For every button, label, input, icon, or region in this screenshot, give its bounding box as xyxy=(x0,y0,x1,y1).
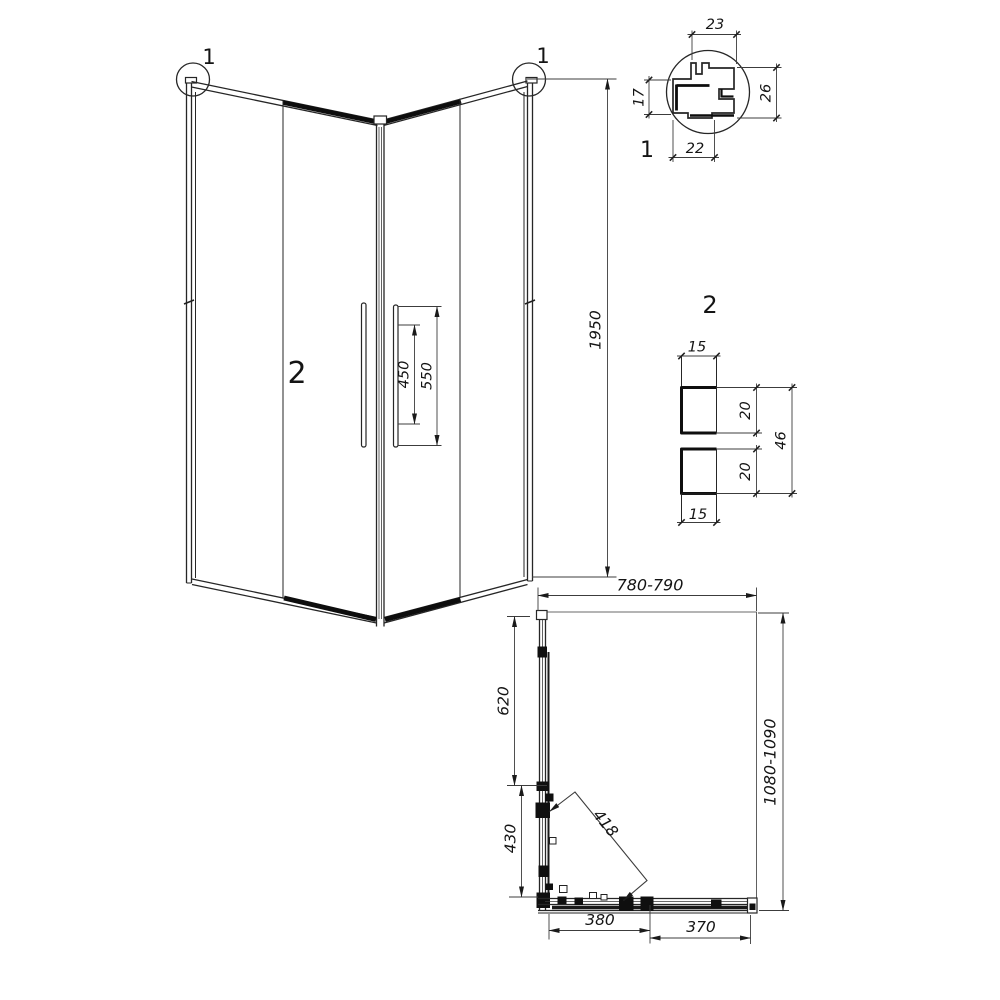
dim-370: 370 xyxy=(686,918,716,936)
guide-clip xyxy=(601,895,607,901)
guide-clip xyxy=(590,893,597,899)
guide-clip xyxy=(550,838,557,845)
roller-block xyxy=(539,866,550,878)
elevation-callout-left-label: 1 xyxy=(202,45,215,69)
top-rail-right xyxy=(384,81,528,126)
roller-block xyxy=(641,897,654,912)
dim-22: 22 xyxy=(686,141,704,157)
plan-side-track xyxy=(536,611,568,911)
wall-profile-left xyxy=(184,78,197,584)
roller-block xyxy=(536,803,551,819)
bracket-block xyxy=(711,900,722,909)
dim-26: 26 xyxy=(759,84,775,102)
door-bottom-edge-left xyxy=(284,598,376,620)
dim-detail2-bottom: 15 xyxy=(677,507,721,526)
wall-profile-right xyxy=(524,78,537,582)
bottom-rail-right xyxy=(384,580,528,624)
corner-block xyxy=(537,893,551,909)
detail-1-view: 23 26 17 22 1 xyxy=(632,17,782,163)
dim-detail1-top: 23 xyxy=(688,17,742,64)
dim-380: 380 xyxy=(585,911,615,929)
dim-20-lower: 20 xyxy=(738,462,754,480)
door-top-edge-left xyxy=(283,103,377,123)
dim-detail2-overall: 46 xyxy=(774,384,796,498)
handle-left xyxy=(362,303,367,447)
dim-20-upper: 20 xyxy=(738,401,754,419)
bottom-rail-left xyxy=(192,579,377,623)
roller-block xyxy=(545,794,554,802)
dim-height-1950: 1950 xyxy=(587,310,605,350)
roller-block xyxy=(538,647,548,658)
glass-flange-upper xyxy=(682,356,717,388)
dim-depth-1080-1090: 1080-1090 xyxy=(761,718,780,805)
dim-detail2-top: 15 xyxy=(677,340,721,360)
door-bottom-edge-right xyxy=(385,600,461,620)
dim-plan-depth: 1080-1090 xyxy=(758,613,789,911)
magnet-profile-lower xyxy=(682,449,717,494)
dim-plan-width: 780-790 xyxy=(538,576,757,612)
door-top-edge-right xyxy=(385,102,462,123)
elevation-callout-right-label: 1 xyxy=(536,44,549,68)
dim-detail1-left: 17 xyxy=(632,76,672,119)
dim-plan-side-lower: 430 xyxy=(502,786,539,898)
elevation-view: 1 1 2 450 550 1950 xyxy=(177,44,617,627)
plan-bottom-track xyxy=(538,893,757,914)
elevation-panel-label: 2 xyxy=(287,356,306,391)
plan-view: 418 780-790 1080-1090 620 430 xyxy=(495,576,790,945)
corner-post xyxy=(374,116,387,627)
dim-23: 23 xyxy=(706,17,724,33)
technical-drawing: 1 1 2 450 550 1950 xyxy=(0,0,1000,1000)
dim-418: 418 xyxy=(589,806,622,840)
detail1-label: 1 xyxy=(640,138,654,163)
roller-block xyxy=(546,884,554,891)
dim-15-bottom: 15 xyxy=(689,507,707,523)
detail2-label: 2 xyxy=(702,291,717,319)
dim-46: 46 xyxy=(774,431,790,449)
dim-15-top: 15 xyxy=(688,340,706,356)
top-rail-left xyxy=(192,82,378,126)
guide-clip xyxy=(560,886,568,893)
dim-height: 1950 xyxy=(527,79,617,577)
roller-block xyxy=(558,897,567,905)
detail-2-view: 2 15 20 xyxy=(677,291,797,526)
dim-detail2-upper: 20 xyxy=(738,384,760,438)
dim-width-780-790: 780-790 xyxy=(617,576,684,595)
dim-detail1-bottom: 22 xyxy=(669,120,720,162)
magnet-profile-upper xyxy=(682,388,717,434)
dim-detail2-lower: 20 xyxy=(738,445,760,498)
plan-tray-outline xyxy=(547,612,757,906)
profile-section-path xyxy=(673,63,734,118)
dim-handle-550: 550 xyxy=(420,362,436,390)
dim-handles: 450 550 xyxy=(397,307,442,446)
dim-17: 17 xyxy=(632,88,648,107)
dim-handle-450: 450 xyxy=(397,361,413,389)
dim-plan-bottom-right: 370 xyxy=(650,915,751,944)
roller-block xyxy=(537,782,550,792)
dim-620: 620 xyxy=(495,686,513,716)
roller-block xyxy=(575,898,584,906)
dim-430: 430 xyxy=(502,824,520,854)
plan-door-diagonal: 418 xyxy=(550,792,648,901)
